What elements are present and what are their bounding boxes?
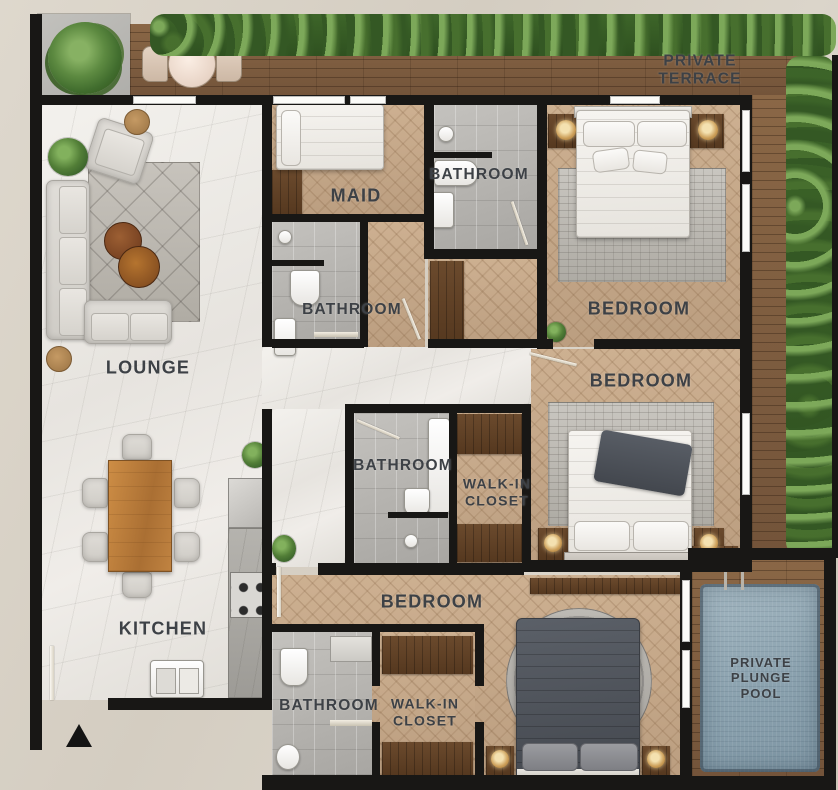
wall-corridor-north-a xyxy=(272,339,364,348)
loveseat xyxy=(84,300,172,344)
dining-chair-right-2 xyxy=(174,532,200,562)
wall-bathroom-bottom-north xyxy=(262,624,382,632)
entry-wardrobe xyxy=(430,261,464,345)
bedroom-top-lamp-left-icon xyxy=(556,120,576,140)
bathroom-bottom-sink xyxy=(276,744,300,770)
wall-right-outer xyxy=(832,55,838,558)
wall-bathroom-master-west xyxy=(345,404,354,566)
bedroom-bottom-bed xyxy=(516,618,640,776)
entry-door-leaf xyxy=(50,646,54,700)
bathroom-top-shower-head-icon xyxy=(438,126,454,142)
bedroom-bottom-lamp-right-icon xyxy=(647,750,665,768)
room-label-lounge: LOUNGE xyxy=(106,357,190,378)
wall-left xyxy=(30,14,42,750)
walkin-master-wardrobe-top xyxy=(457,414,522,454)
room-label-private-terrace: PRIVATE TERRACE xyxy=(631,53,769,90)
wall-bathroom-bottom-east-a xyxy=(372,632,380,686)
bathroom-maid-sink xyxy=(274,318,296,356)
room-label-bathroom-master: BATHROOM xyxy=(353,457,453,475)
dining-table xyxy=(108,460,172,572)
room-label-walkin-bottom: WALK-IN CLOSET xyxy=(391,695,459,728)
wall-maid-south xyxy=(262,214,434,222)
kitchen-sink xyxy=(150,660,204,698)
window-top-1 xyxy=(133,96,196,104)
room-label-bathroom-maid: BATHROOM xyxy=(302,301,402,319)
walkin-bottom-wardrobe-top xyxy=(382,636,473,674)
tree-icon xyxy=(48,22,122,94)
bathroom-bottom-shower-pad xyxy=(330,636,372,662)
wall-pool-right xyxy=(824,548,836,790)
bedroom-bottom-door-leaf xyxy=(277,567,281,617)
bedroom-top-lamp-right-icon xyxy=(698,120,718,140)
bathroom-maid-shower-head-icon xyxy=(278,230,292,244)
dining-chair-right-1 xyxy=(174,478,200,508)
room-label-bathroom-bottom: BATHROOM xyxy=(279,697,379,715)
window-right-3 xyxy=(742,413,750,495)
wall-bedroom-middle-south xyxy=(522,560,752,572)
bedroom-middle-bed xyxy=(568,430,692,554)
bedroom-top-bed xyxy=(576,110,690,238)
window-top-2 xyxy=(273,96,345,104)
dining-chair-bottom xyxy=(122,572,152,598)
terrace-plants-right xyxy=(786,56,835,556)
wall-corridor-south xyxy=(345,404,530,413)
hall-plant-icon xyxy=(272,535,296,562)
bathroom-maid-towel-bar xyxy=(314,332,358,337)
fridge xyxy=(228,478,264,528)
window-top-3 xyxy=(350,96,386,104)
dining-chair-left-2 xyxy=(82,532,108,562)
maid-wardrobe xyxy=(272,170,302,216)
walkin-master-wardrobe-bottom xyxy=(457,524,522,562)
wall-walkin-bottom-north xyxy=(380,624,484,632)
bedroom-bottom-wardrobe-band xyxy=(530,578,682,594)
bathroom-master-partition xyxy=(388,512,448,518)
bedroom-bottom-lamp-left-icon xyxy=(491,750,509,768)
wall-bathroom-maid-east xyxy=(360,214,368,347)
walkin-bottom-wardrobe-bottom xyxy=(382,742,473,775)
maid-single-bed xyxy=(276,104,384,170)
bathroom-master-shower-drain-icon xyxy=(404,534,418,548)
lounge-plant-icon xyxy=(48,138,88,176)
dining-chair-left-1 xyxy=(82,478,108,508)
window-right-2 xyxy=(742,184,750,252)
wall-bedroom-bottom-south xyxy=(262,775,692,790)
window-top-4 xyxy=(610,96,660,104)
wall-corridor-north-b xyxy=(428,339,537,348)
corridor-floor xyxy=(262,347,538,409)
room-label-maid: MAID xyxy=(331,185,382,206)
room-label-bedroom-top: BEDROOM xyxy=(588,298,690,319)
wall-pool-bottom xyxy=(688,776,836,790)
wall-bathroom-master-east xyxy=(449,404,457,566)
bathroom-top-partition xyxy=(428,152,492,158)
room-label-plunge-pool: PRIVATE PLUNGE POOL xyxy=(730,655,791,701)
window-pool-1 xyxy=(682,580,690,642)
bathroom-maid-partition xyxy=(272,260,324,266)
wall-bedroom-top-south-a xyxy=(537,339,553,349)
wall-pool-top xyxy=(688,548,834,560)
wall-bathroom-bottom-east-b xyxy=(372,722,380,775)
wall-kitchen-bottom xyxy=(108,698,272,710)
room-label-bedroom-bottom: BEDROOM xyxy=(381,591,483,612)
room-label-walkin-master: WALK-IN CLOSET xyxy=(463,475,531,508)
coffee-table-2 xyxy=(118,246,160,288)
room-label-kitchen: KITCHEN xyxy=(119,618,207,639)
wall-bedroom-top-south-b xyxy=(594,339,752,349)
terrace-hedge-top xyxy=(150,14,836,56)
wall-kitchen-east xyxy=(262,409,272,710)
entry-arrow-icon xyxy=(66,724,92,747)
wall-bedroom-top-west xyxy=(537,95,547,349)
room-label-bathroom-top: BATHROOM xyxy=(429,166,529,184)
lounge-pouf-2 xyxy=(46,346,72,372)
room-label-bedroom-middle: BEDROOM xyxy=(590,370,692,391)
wall-walkin-bottom-east-b xyxy=(475,722,484,775)
lounge-pouf-1 xyxy=(124,109,150,135)
window-pool-2 xyxy=(682,650,690,708)
bathroom-bottom-toilet xyxy=(280,648,308,686)
floor-plan-screenshot: { "colors": { "bg": "#d9d3c8", "wall": "… xyxy=(0,0,838,790)
window-right-1 xyxy=(742,110,750,172)
stove-cooktop xyxy=(230,572,264,618)
wall-bedroom-bottom-north-b xyxy=(318,563,524,575)
bathroom-bottom-towel-bar xyxy=(330,720,372,726)
bedroom-middle-lamp-left-icon xyxy=(544,534,562,552)
wall-bathroom-top-south xyxy=(424,249,545,259)
dining-chair-top xyxy=(122,434,152,460)
wall-walkin-bottom-east-a xyxy=(475,632,484,686)
